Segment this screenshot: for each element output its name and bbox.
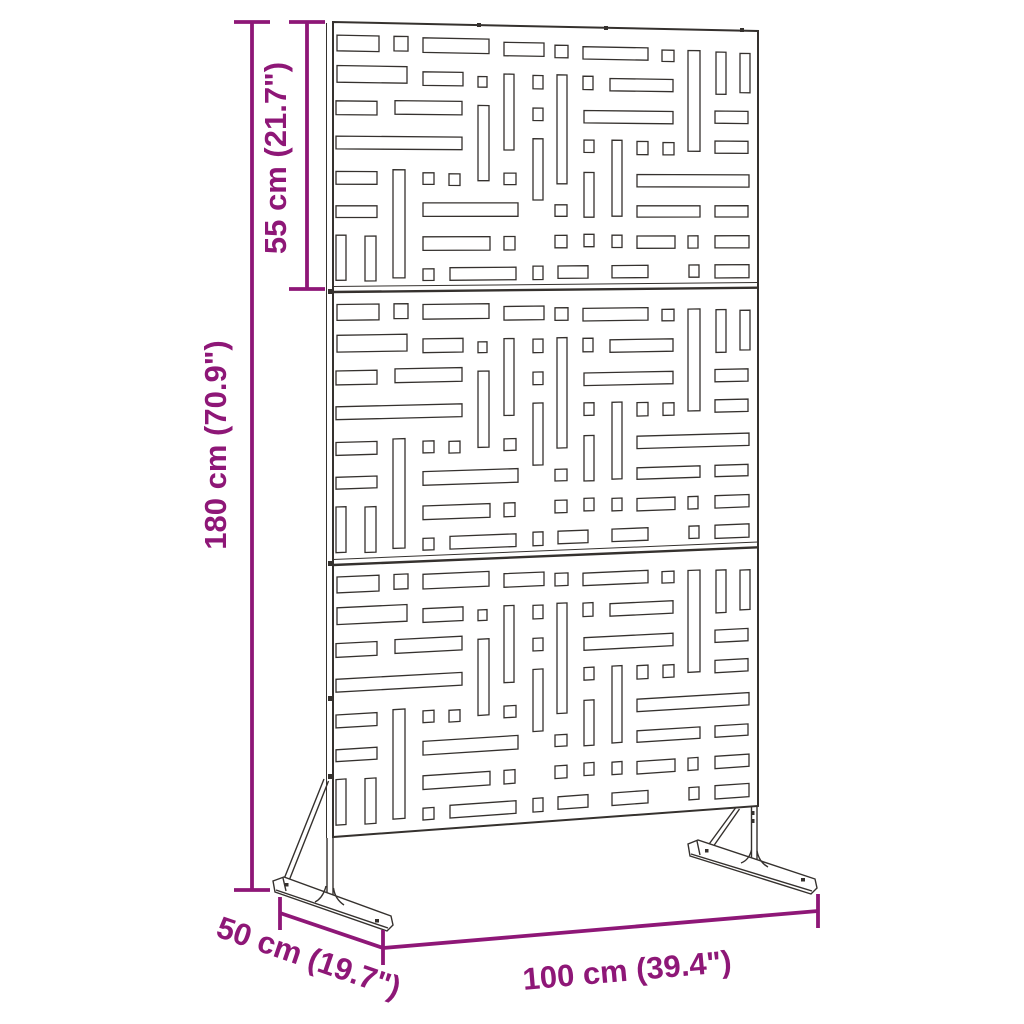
panel-slot (478, 105, 489, 180)
panel-slot (715, 783, 749, 799)
panel-slot (610, 79, 673, 92)
panel-slot (423, 607, 463, 623)
panel-slot (612, 528, 648, 542)
panel-slot (612, 498, 622, 511)
panel-slot (533, 372, 543, 385)
panel-slot (740, 53, 750, 92)
panel-slot (393, 170, 405, 278)
panel-slot (584, 762, 594, 775)
panel-slot (612, 666, 622, 743)
panel-slot (689, 787, 699, 800)
panel-slot (583, 570, 648, 585)
panel-slot (393, 709, 405, 819)
panel-slot (715, 399, 748, 412)
panel-slot (336, 235, 346, 280)
panel-slot (450, 534, 516, 549)
panel-slot (688, 570, 700, 672)
panel-slot (715, 495, 749, 509)
panel-slot (423, 269, 434, 281)
fastener-dot (328, 696, 332, 701)
panel-slot (504, 74, 514, 150)
panel-slot (610, 601, 673, 617)
panel-slot (423, 38, 489, 54)
panel-slot (663, 403, 674, 416)
panel-slot (504, 306, 544, 320)
panel-slot (662, 50, 674, 62)
panel-slot (637, 206, 700, 217)
fastener-dot (751, 819, 755, 823)
panel-slot (715, 628, 748, 642)
panel-slot (393, 439, 405, 549)
panel-slot (395, 101, 462, 115)
panel-slot (584, 140, 594, 153)
panel-slot (478, 77, 487, 88)
panel-slot (662, 309, 674, 321)
panel-slot (688, 309, 700, 411)
panel-slot (716, 570, 726, 613)
panel-slot (423, 710, 434, 723)
panel-slot (504, 572, 544, 587)
panel-slot (504, 339, 514, 416)
panel-slot (336, 507, 346, 553)
panel-slot (612, 140, 622, 216)
panel-slot (715, 659, 748, 673)
panel-slot (533, 339, 543, 353)
panel-slot (637, 497, 675, 511)
panel-slot (423, 304, 489, 320)
panel-slot (478, 371, 489, 447)
panel-slot (583, 47, 648, 61)
panel-slot (612, 265, 648, 278)
panel-slot (716, 52, 726, 94)
panel-slot (337, 304, 379, 320)
panel-slot (478, 342, 487, 353)
panel-slot (555, 308, 568, 321)
privacy-screen (273, 22, 817, 931)
fastener-dot (328, 774, 332, 779)
panel-slot (423, 441, 434, 453)
panel-slot (423, 338, 463, 352)
panel-slot (395, 368, 462, 383)
panel-slot (584, 498, 594, 511)
panel-slot (336, 713, 377, 728)
panel-slot (423, 237, 490, 251)
panel-slot (336, 370, 377, 385)
panel-slot (423, 173, 434, 185)
panel-slot (423, 469, 518, 486)
panel-slot (336, 779, 346, 825)
panel-slot (504, 770, 515, 784)
panel-slot (583, 603, 593, 617)
panel-slot (558, 266, 588, 279)
panel-slot (533, 139, 543, 200)
section-height-dimension: 55 cm (21.7") (258, 22, 325, 289)
panel-slot (533, 75, 543, 89)
panel-slot (394, 36, 408, 51)
fastener-dot (375, 919, 379, 923)
panel-slot (637, 665, 648, 679)
panel-slot (583, 308, 648, 321)
panel-slot (583, 338, 593, 352)
panel-slot (688, 496, 698, 509)
fastener-dot (477, 23, 481, 27)
panel-slot (557, 338, 567, 449)
panel-slot (689, 265, 699, 277)
panel-slot (504, 173, 516, 185)
panel-slot (423, 807, 434, 820)
panel-slot (715, 369, 748, 382)
panel-slot (336, 206, 377, 218)
panel-slot (688, 757, 698, 770)
panel-slot (504, 705, 516, 717)
panel-slot (394, 304, 408, 319)
panel-slot (337, 575, 379, 593)
height-dimension-label: 180 cm (70.9") (198, 340, 233, 549)
panel-slot (584, 700, 594, 746)
panel-slot (504, 439, 516, 451)
fastener-dot (751, 811, 755, 815)
panel-slot (557, 75, 567, 184)
panel-slot (533, 403, 543, 465)
panel-slot (336, 476, 377, 489)
panel-slot (558, 530, 588, 544)
panel-slot (555, 500, 567, 513)
panel-slot (365, 236, 376, 281)
panel-slot (584, 172, 594, 217)
panel-slot (740, 310, 750, 350)
panel-slot (715, 724, 748, 737)
panel-slot (612, 790, 648, 805)
panel-slot (583, 76, 593, 90)
panel-slot (715, 265, 749, 278)
section-height-dimension-label: 55 cm (21.7") (258, 62, 293, 254)
panel-slot (533, 532, 543, 546)
panel-slot (612, 762, 622, 775)
panel-slot (663, 665, 674, 678)
panel-slot (423, 571, 489, 589)
left-leg-post (327, 838, 333, 900)
panel-slot (533, 798, 543, 812)
product-dimension-diagram: 180 cm (70.9") 55 cm (21.7") 100 cm (39.… (0, 0, 1024, 1024)
panel-slot (584, 111, 673, 124)
panel-slot (478, 610, 487, 621)
fastener-dot (328, 289, 332, 294)
panel-slot (365, 507, 376, 553)
panel-slot (715, 754, 749, 769)
panel-slot (337, 605, 407, 625)
width-dimension-line (383, 911, 818, 948)
panel-slot (740, 570, 750, 610)
panel-slot (533, 638, 543, 651)
fastener-dot (604, 26, 608, 30)
panel-slot (688, 51, 700, 152)
panel-slot (394, 574, 408, 589)
panel-slot (555, 45, 568, 58)
panel-slot (555, 235, 567, 248)
panel-slot (449, 710, 460, 722)
panel-slot (612, 402, 622, 479)
panel-slot (637, 236, 675, 248)
panel-slot (555, 469, 567, 481)
panel-slot (478, 639, 489, 716)
panel-slot (336, 441, 377, 455)
panel-slot (365, 778, 376, 824)
panel-slot (662, 571, 674, 583)
fastener-dot (801, 878, 805, 882)
panel-slot (555, 205, 567, 217)
panel-slot (584, 371, 673, 385)
panel-slot (584, 435, 594, 481)
panel-slot (423, 504, 490, 520)
fastener-dot (328, 561, 332, 566)
panel-slot (336, 101, 377, 115)
panel-slot (395, 636, 462, 653)
panel-slot (336, 171, 377, 184)
left-leg-brace (282, 779, 329, 887)
panel-slot (423, 72, 463, 86)
panel-slot (637, 433, 749, 449)
panel-slot (533, 108, 543, 121)
panel-slot (715, 206, 748, 217)
panel-slot (533, 669, 543, 732)
panel-slot (637, 141, 648, 154)
panel-slot (688, 236, 698, 248)
panel-slot (336, 642, 377, 658)
panel-slot (715, 236, 749, 248)
panel-slot (336, 404, 462, 420)
fastener-dot (740, 28, 744, 32)
panel-slot (504, 503, 515, 517)
panel-slot (555, 765, 567, 778)
width-dimension: 100 cm (39.4") (383, 894, 818, 997)
panel-slot (555, 573, 568, 586)
fastener-dot (285, 883, 289, 887)
panel-slot (612, 235, 622, 247)
panel-slot (637, 466, 700, 480)
panel-slot (715, 524, 749, 539)
panel-slot (449, 174, 460, 186)
panel-slot (715, 141, 748, 153)
panel-slot (336, 136, 462, 150)
panel-slot (337, 66, 407, 84)
panel-slot (584, 667, 594, 680)
panel-slot (584, 403, 594, 416)
panel-slot (337, 35, 379, 52)
panel-slot (450, 267, 516, 280)
panel-slot (558, 795, 588, 810)
panel-slot (716, 310, 726, 353)
panel-slot (533, 266, 543, 280)
panel-slot (337, 334, 407, 352)
panel-slot (533, 605, 543, 619)
panel-slot (715, 111, 748, 124)
panel-slot (504, 605, 514, 682)
panel-slot (663, 143, 674, 155)
panel-slot (637, 402, 648, 416)
panel-slot (557, 603, 567, 714)
panel-slot (423, 203, 518, 217)
panel-slot (423, 538, 434, 550)
panel-slot (610, 339, 673, 353)
panel-slot (689, 526, 699, 539)
panel-slot (637, 759, 675, 774)
panel-slot (504, 42, 544, 56)
panel-slot (336, 747, 377, 762)
panel-slot (555, 734, 567, 746)
panel-slot (449, 441, 460, 453)
fastener-dot (705, 849, 709, 853)
width-dimension-label: 100 cm (39.4") (521, 944, 733, 997)
panel-slot (637, 175, 749, 188)
panel-slot (584, 234, 594, 246)
panel-slot (504, 237, 515, 251)
panel-slot (715, 464, 748, 476)
